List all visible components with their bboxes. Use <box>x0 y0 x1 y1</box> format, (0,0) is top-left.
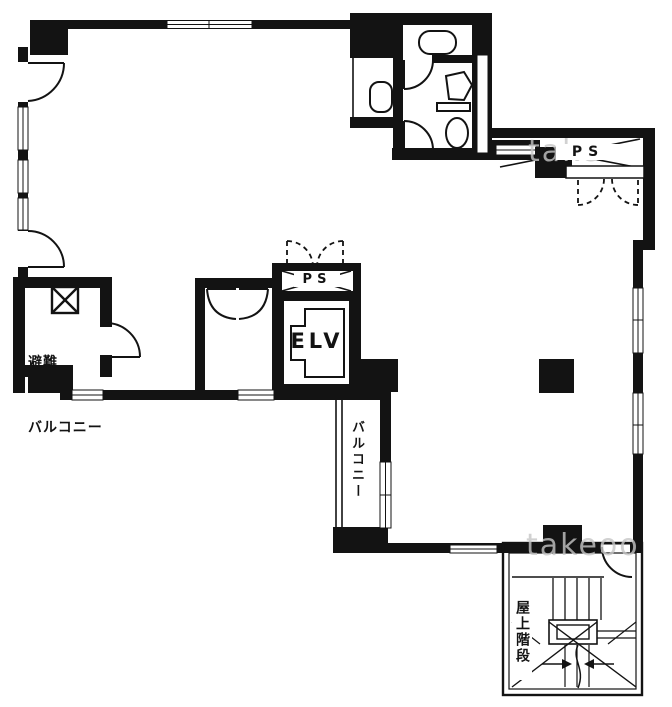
roof-stairs-label: 屋上階段 <box>512 600 532 680</box>
elevator-label: ELV <box>284 329 350 353</box>
sink-icon <box>419 31 456 54</box>
urinal-icon <box>370 82 392 112</box>
watermark-text: takeoo <box>526 528 640 563</box>
toilet-icon <box>446 72 472 100</box>
balcony-railing <box>336 400 342 527</box>
balcony-label: バルコニー <box>347 420 366 535</box>
evac-balcony-label-line2: バルコニー <box>28 418 103 440</box>
evac-balcony-label-line1: 避難 <box>28 353 103 375</box>
pipe-shaft-center-label: PS <box>294 272 340 287</box>
pipe-shaft-top-right-label: PS <box>556 144 620 160</box>
toilet-icon <box>446 118 468 148</box>
evac-balcony-label: 避難 バルコニー <box>28 310 103 484</box>
cistern-shelf <box>437 103 470 111</box>
floor-plan: take takeoo 避難 バルコニー PS PS ELV バルコニー 屋上階… <box>0 0 672 707</box>
dashed-double-door-icons <box>287 179 638 267</box>
